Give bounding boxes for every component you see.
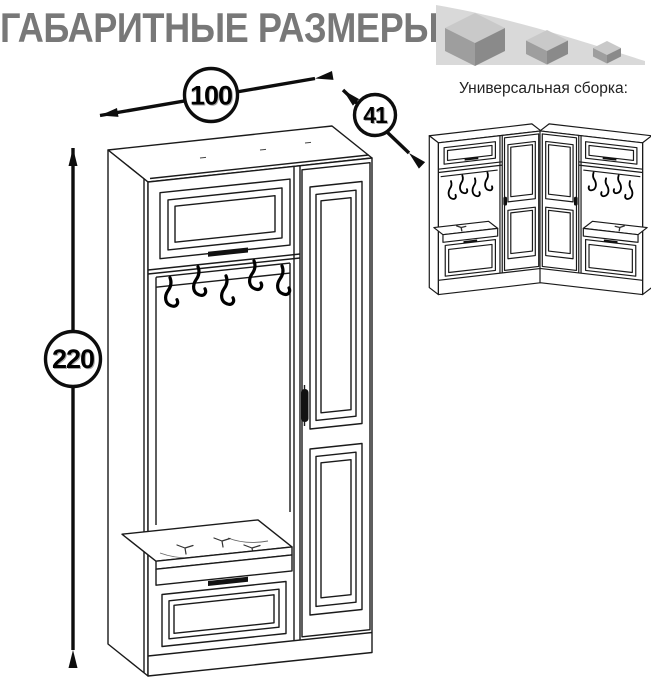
shrinking-cubes-icon — [436, 5, 645, 66]
dimension-width: 100 — [100, 69, 315, 122]
assembly-heading: Универсальная сборка: — [459, 80, 628, 98]
depth-value: 41 — [363, 102, 388, 128]
dimension-height: 220 — [46, 148, 101, 650]
wardrobe-main-drawing — [108, 126, 372, 676]
product-dimensions-page: ГАБАРИТНЫЕ РАЗМЕРЫ — [0, 0, 651, 700]
assembly-variant-door-left — [540, 124, 651, 295]
assembly-variant-door-right — [429, 124, 541, 295]
dimension-drawing: 100 41 220 — [0, 0, 651, 700]
door-handle — [301, 389, 309, 422]
height-value: 220 — [52, 344, 94, 374]
width-value: 100 — [190, 81, 232, 111]
